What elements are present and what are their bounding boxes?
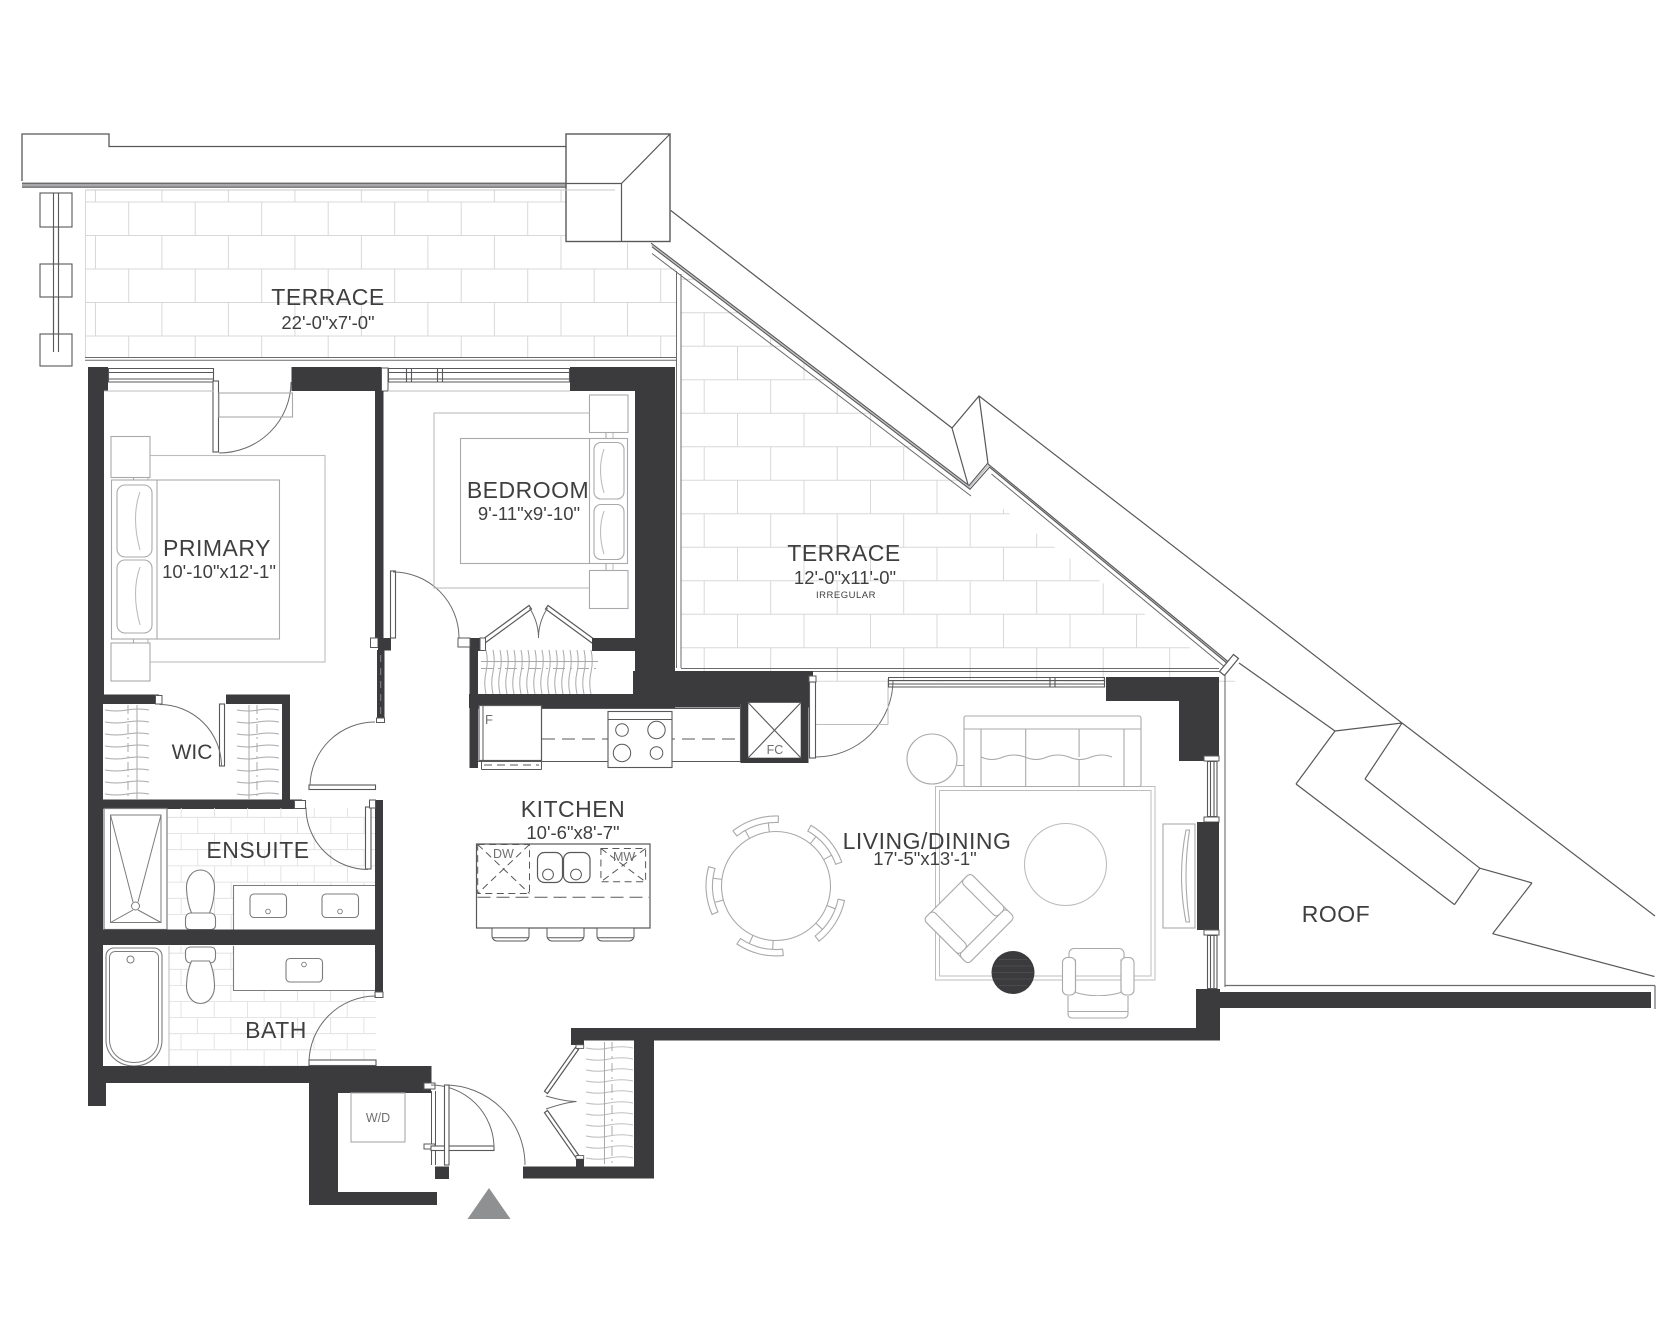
svg-text:10'-6"x8'-7": 10'-6"x8'-7" (526, 822, 619, 843)
svg-text:MW: MW (613, 850, 635, 864)
svg-text:ENSUITE: ENSUITE (206, 837, 309, 863)
svg-text:KITCHEN: KITCHEN (521, 796, 625, 822)
svg-text:PRIMARY: PRIMARY (163, 535, 271, 561)
svg-text:22'-0"x7'-0": 22'-0"x7'-0" (281, 312, 374, 333)
svg-text:10'-10"x12'-1": 10'-10"x12'-1" (162, 561, 276, 582)
svg-text:W/D: W/D (366, 1111, 390, 1125)
svg-text:9'-11"x9'-10": 9'-11"x9'-10" (478, 503, 580, 524)
svg-text:ROOF: ROOF (1302, 901, 1370, 927)
svg-text:TERRACE: TERRACE (787, 540, 900, 566)
svg-text:IRREGULAR: IRREGULAR (816, 590, 876, 601)
svg-text:F: F (485, 712, 493, 727)
svg-text:BEDROOM: BEDROOM (467, 477, 589, 503)
svg-text:DW: DW (493, 847, 514, 861)
svg-text:12'-0"x11'-0": 12'-0"x11'-0" (794, 567, 896, 588)
svg-text:17'-5"x13'-1": 17'-5"x13'-1" (873, 848, 977, 869)
svg-text:TERRACE: TERRACE (271, 284, 384, 310)
svg-text:WIC: WIC (172, 741, 213, 764)
svg-text:FC: FC (767, 743, 784, 757)
svg-text:BATH: BATH (245, 1017, 307, 1043)
